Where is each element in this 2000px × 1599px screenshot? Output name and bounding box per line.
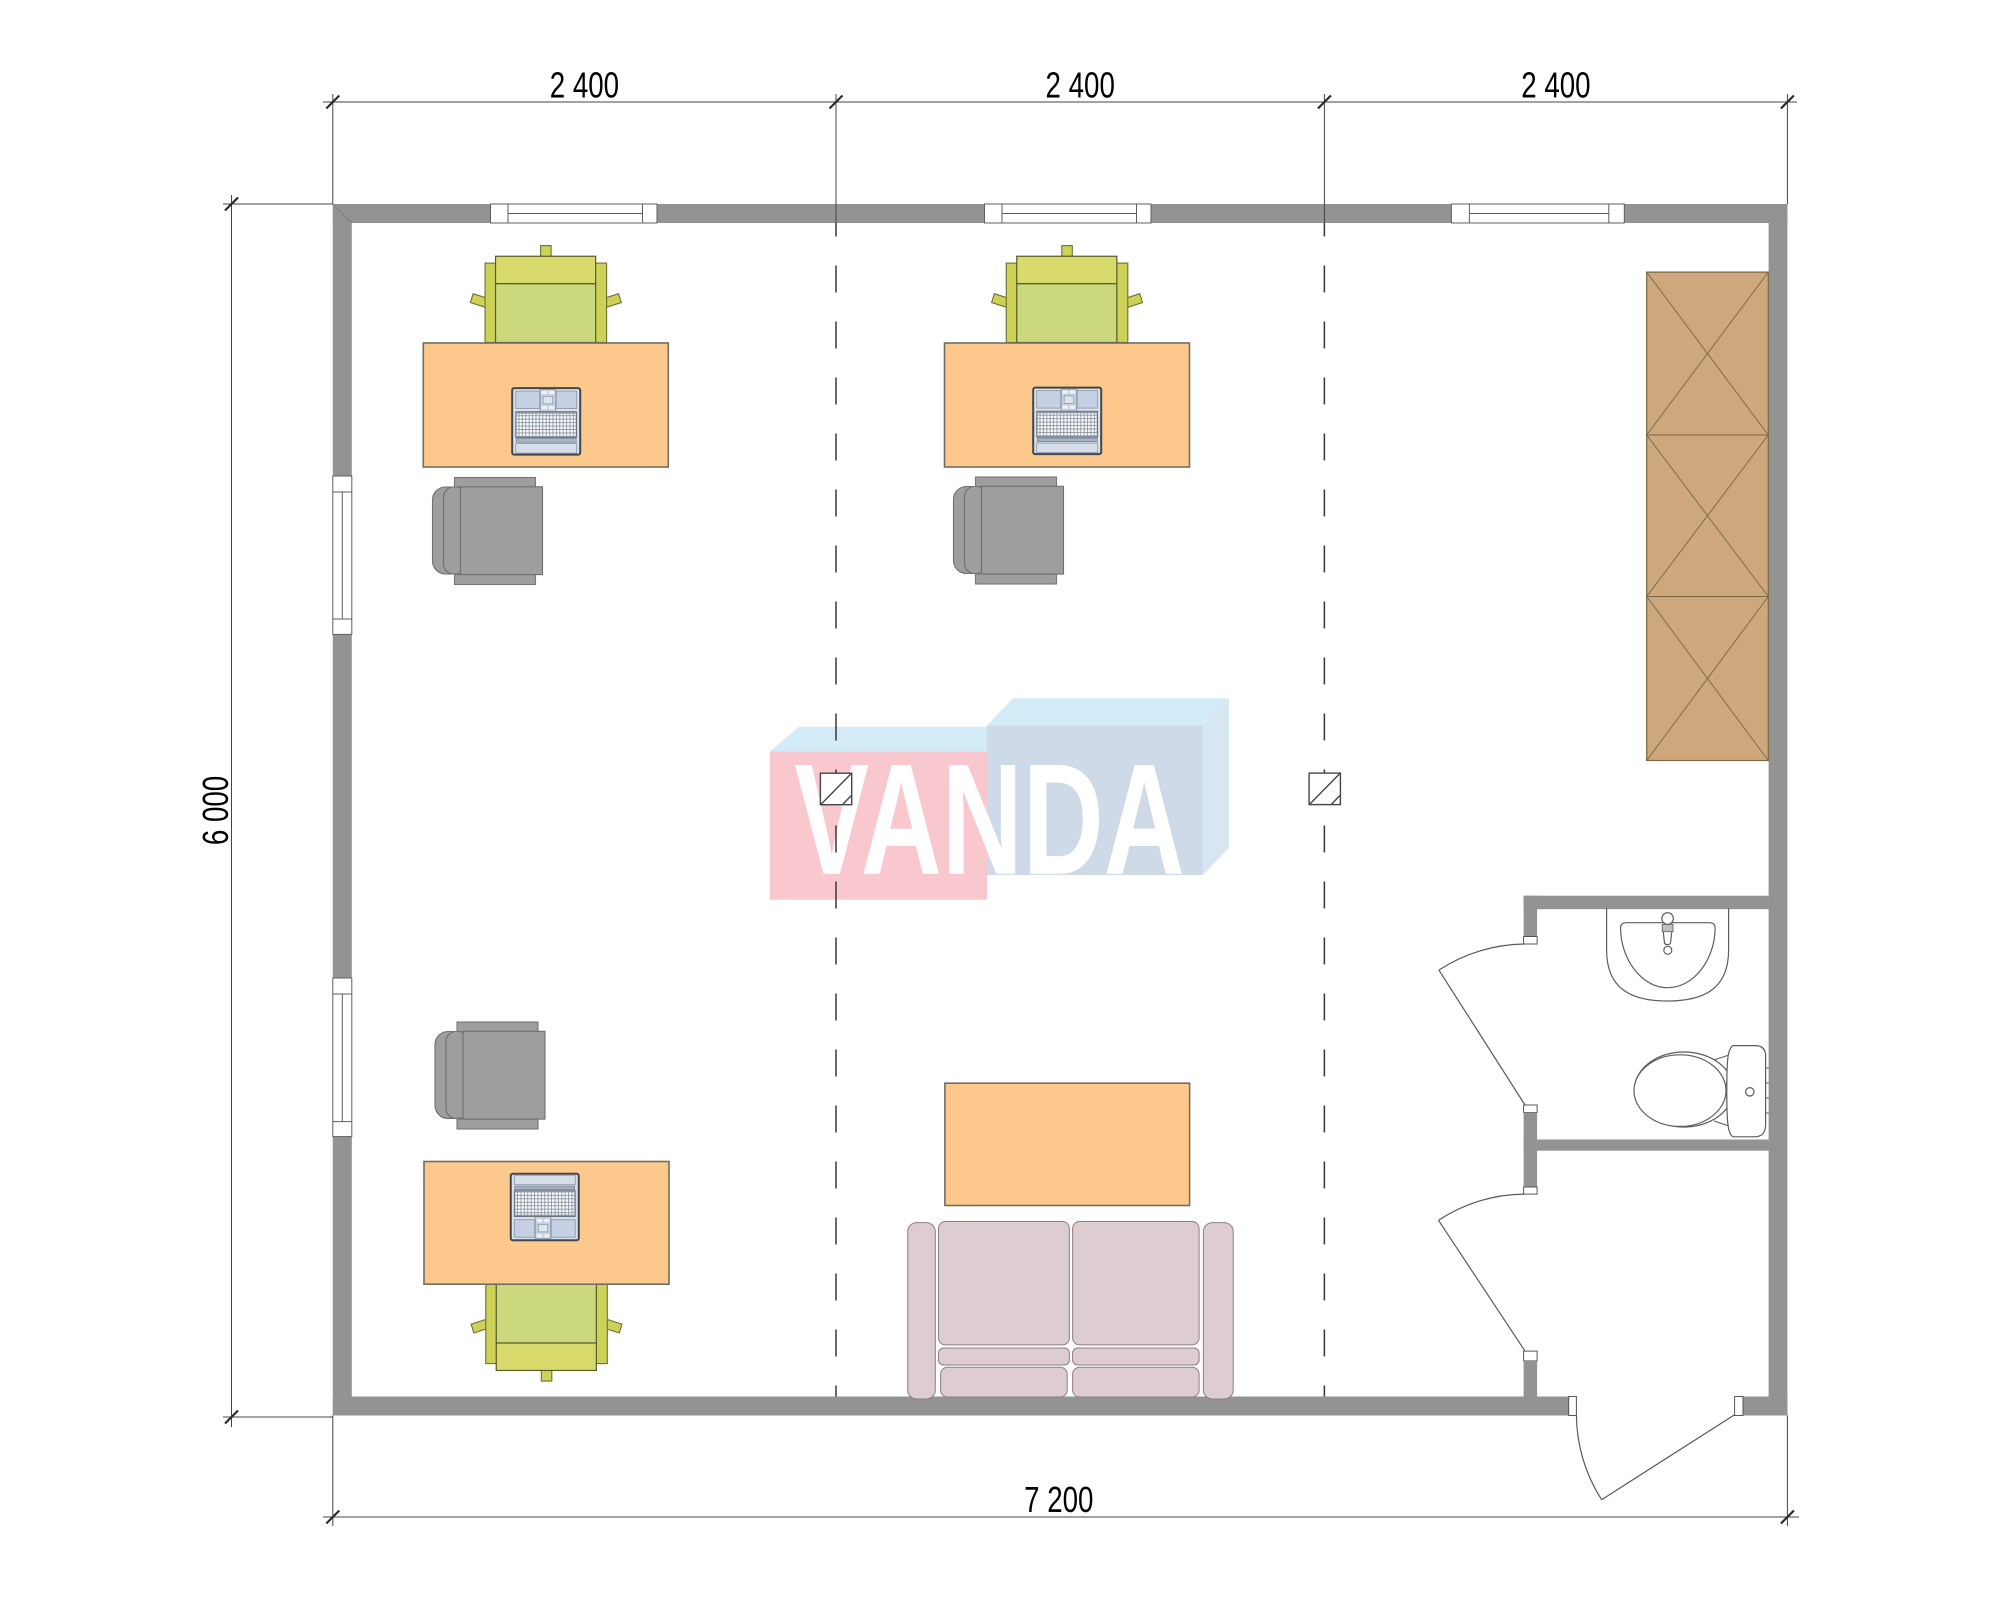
svg-text:2 400: 2 400 — [550, 65, 619, 105]
svg-text:2 400: 2 400 — [1521, 65, 1590, 105]
svg-text:VANDA: VANDA — [794, 732, 1185, 908]
svg-text:7 200: 7 200 — [1024, 1480, 1093, 1520]
svg-text:2 400: 2 400 — [1046, 65, 1115, 105]
svg-text:6 000: 6 000 — [196, 776, 236, 845]
